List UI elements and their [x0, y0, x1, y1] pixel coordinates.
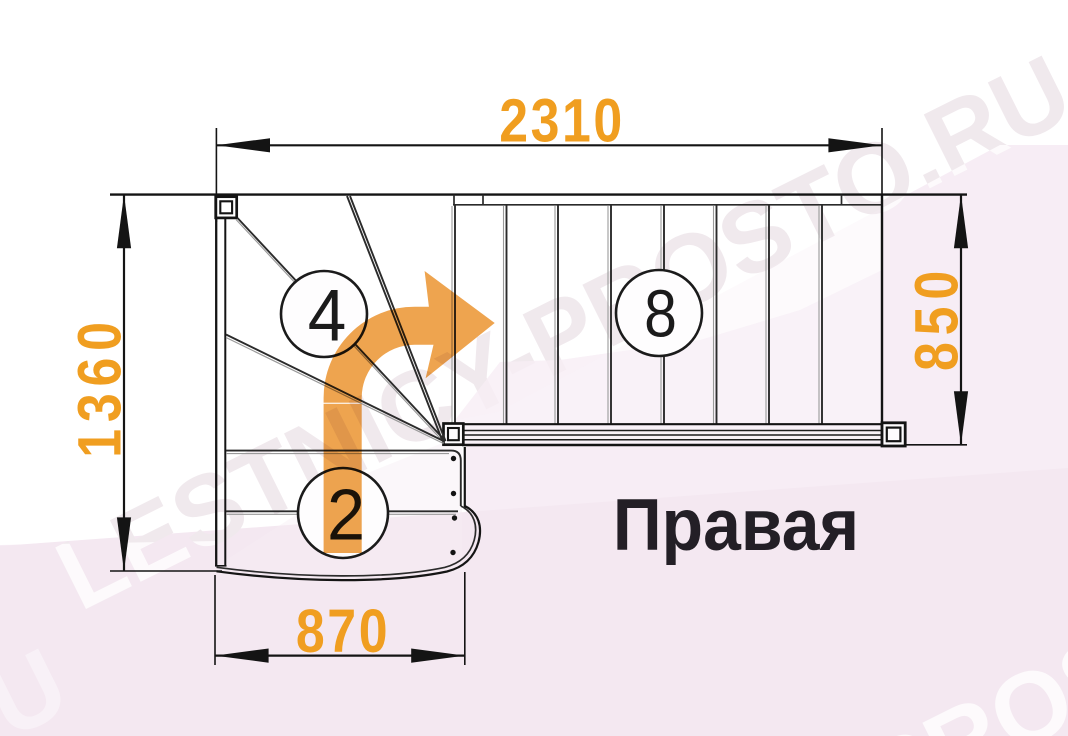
svg-text:870: 870 — [296, 597, 390, 665]
svg-text:2310: 2310 — [499, 87, 625, 155]
svg-text:4: 4 — [308, 276, 347, 357]
svg-text:8: 8 — [644, 277, 677, 351]
svg-text:Правая: Правая — [613, 484, 859, 566]
svg-text:850: 850 — [903, 264, 971, 371]
svg-text:1360: 1360 — [66, 315, 134, 458]
